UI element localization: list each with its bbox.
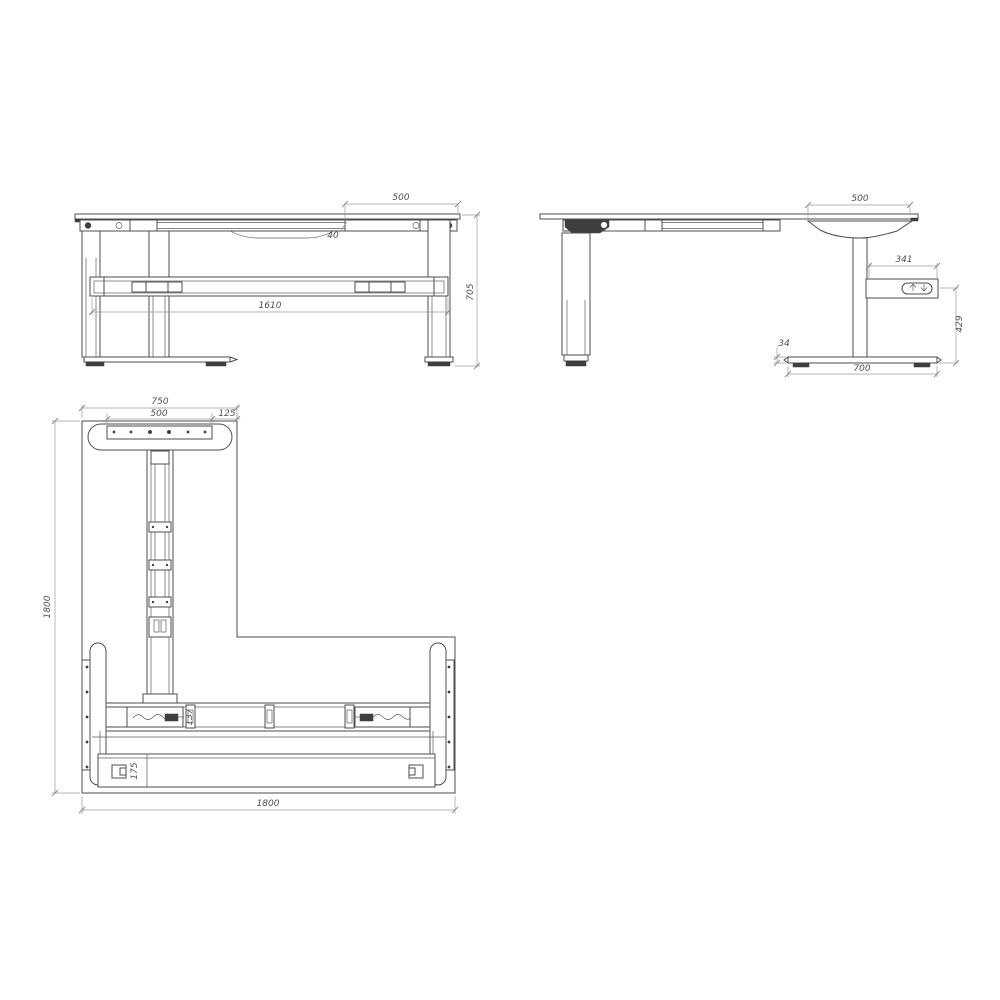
plan-return-beam <box>143 450 177 704</box>
front-crossbar <box>90 277 448 296</box>
dim-label-plan-175: 175 <box>130 762 140 779</box>
plan-dim-1800-bottom: 1800 <box>79 796 458 814</box>
plan-crossbeam <box>88 703 450 731</box>
plan-beam-divider <box>345 705 354 728</box>
dim-label-side-500: 500 <box>851 194 868 204</box>
dim-label-front-500: 500 <box>392 193 409 203</box>
side-right-leg <box>853 238 867 357</box>
plan-top-foot <box>88 424 232 450</box>
plan-view: 750 500 125 1800 137 175 1800 <box>43 397 458 814</box>
plan-dim-137: 137 <box>185 708 195 725</box>
side-control-box <box>866 279 938 298</box>
technical-drawing-page: 500 40 1610 705 <box>0 0 1000 1000</box>
dim-label-front-1610: 1610 <box>259 301 282 311</box>
side-view: 500 341 429 34 700 <box>540 194 965 377</box>
side-left-leg <box>562 233 590 366</box>
dim-label-side-700: 700 <box>853 364 870 374</box>
side-dim-341: 341 <box>866 255 940 278</box>
front-view: 500 40 1610 705 <box>75 193 480 369</box>
dim-label-front-40: 40 <box>327 231 339 241</box>
dim-label-plan-1800-left: 1800 <box>43 595 53 618</box>
plan-right-motor <box>354 707 440 727</box>
side-dim-429: 429 <box>939 285 965 366</box>
dim-label-side-34: 34 <box>778 339 790 349</box>
side-top-bracket <box>808 221 912 238</box>
plan-dim-125: 125 <box>212 409 240 422</box>
plan-dim-1800-left: 1800 <box>43 418 80 796</box>
dim-label-plan-137: 137 <box>185 708 195 725</box>
plan-left-motor <box>98 707 184 727</box>
front-return-foot <box>84 357 237 366</box>
dim-label-plan-1800-bottom: 1800 <box>257 799 280 809</box>
plan-cable-tray <box>92 731 446 787</box>
dim-label-side-341: 341 <box>895 255 912 265</box>
dim-label-side-429: 429 <box>955 315 965 332</box>
side-frame-rail <box>563 220 780 233</box>
plan-beam-divider <box>265 705 274 728</box>
technical-drawing: 500 40 1610 705 <box>0 0 1000 1000</box>
dim-label-plan-125: 125 <box>218 409 235 419</box>
dim-label-plan-750: 750 <box>151 397 168 407</box>
front-right-foot <box>425 357 453 366</box>
front-dim-1610: 1610 <box>89 298 451 315</box>
plan-dim-175: 175 <box>130 762 140 779</box>
dim-label-plan-500: 500 <box>150 409 167 419</box>
front-dim-705: 705 <box>455 212 480 369</box>
plan-dim-500: 500 <box>104 409 215 424</box>
front-frame-rail <box>80 220 457 238</box>
dim-label-front-705: 705 <box>466 283 476 300</box>
